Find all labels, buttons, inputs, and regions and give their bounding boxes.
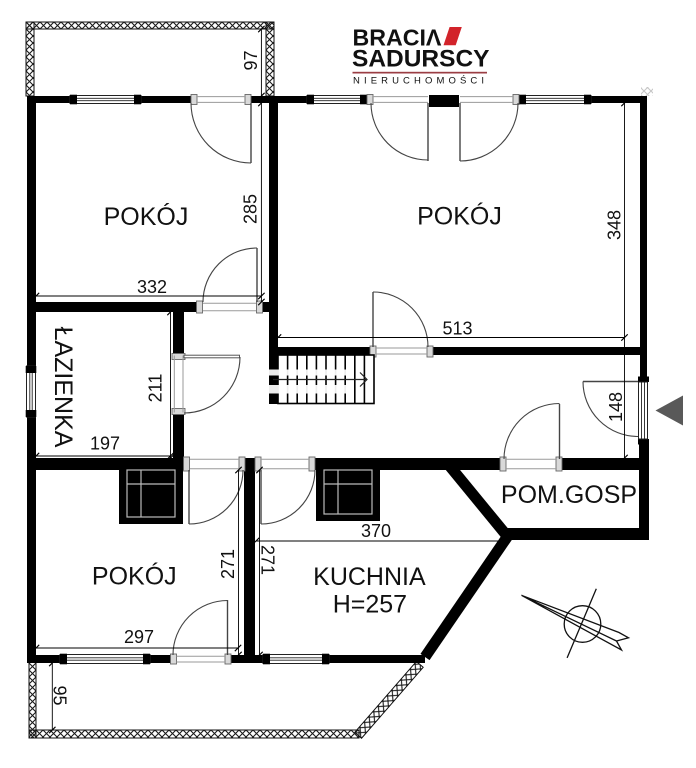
- svg-text:211: 211: [146, 374, 166, 403]
- svg-text:285: 285: [241, 194, 261, 224]
- svg-text:95: 95: [50, 685, 70, 705]
- svg-text:297: 297: [124, 627, 154, 647]
- svg-text:KUCHNIA: KUCHNIA: [313, 563, 426, 591]
- svg-text:348: 348: [605, 210, 625, 240]
- svg-text:513: 513: [442, 319, 472, 339]
- svg-text:332: 332: [137, 277, 167, 297]
- svg-text:370: 370: [361, 521, 391, 541]
- svg-text:POKÓJ: POKÓJ: [92, 562, 177, 591]
- svg-text:POKÓJ: POKÓJ: [104, 202, 189, 231]
- svg-text:97: 97: [241, 50, 261, 70]
- svg-text:POKÓJ: POKÓJ: [417, 202, 502, 231]
- svg-text:SADURSCY: SADURSCY: [352, 46, 490, 73]
- svg-text:197: 197: [90, 434, 120, 454]
- svg-text:NIERUCHOMOŚCI: NIERUCHOMOŚCI: [353, 75, 488, 87]
- svg-text:ŁAZIENKA: ŁAZIENKA: [49, 327, 77, 448]
- svg-text:H=257: H=257: [333, 590, 407, 618]
- svg-text:271: 271: [218, 549, 238, 579]
- svg-text:271: 271: [258, 545, 278, 575]
- svg-text:148: 148: [606, 392, 626, 422]
- svg-text:POM.GOSP: POM.GOSP: [501, 481, 637, 509]
